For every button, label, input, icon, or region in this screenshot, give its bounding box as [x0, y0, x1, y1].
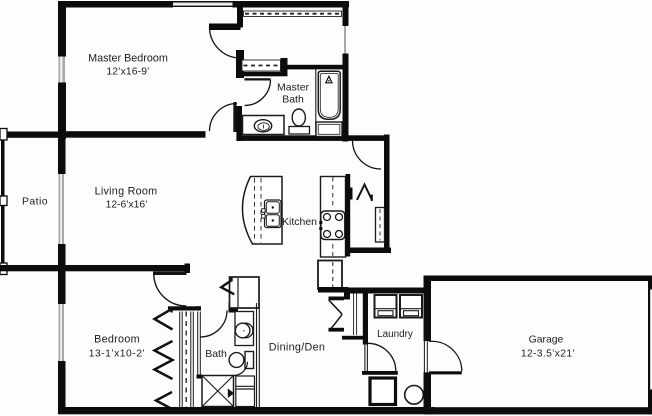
svg-text:Kitchen: Kitchen: [282, 216, 317, 228]
svg-text:Bedroom: Bedroom: [94, 334, 140, 346]
svg-text:Master Bedroom: Master Bedroom: [88, 53, 168, 65]
svg-text:Master: Master: [277, 82, 310, 94]
svg-text:Living Room: Living Room: [95, 186, 158, 198]
svg-text:Dining/Den: Dining/Den: [269, 342, 325, 354]
svg-text:12-3.5’x21’: 12-3.5’x21’: [521, 349, 575, 360]
svg-text:Garage: Garage: [529, 335, 564, 346]
svg-text:12-6’x16’: 12-6’x16’: [106, 200, 148, 211]
svg-text:12’x16-9’: 12’x16-9’: [106, 67, 149, 78]
svg-text:13-1’x10-2’: 13-1’x10-2’: [89, 349, 145, 360]
svg-text:Bath: Bath: [282, 94, 304, 106]
svg-text:Laundry: Laundry: [377, 329, 413, 340]
svg-text:Bath: Bath: [205, 348, 227, 360]
svg-text:Patio: Patio: [22, 196, 48, 208]
